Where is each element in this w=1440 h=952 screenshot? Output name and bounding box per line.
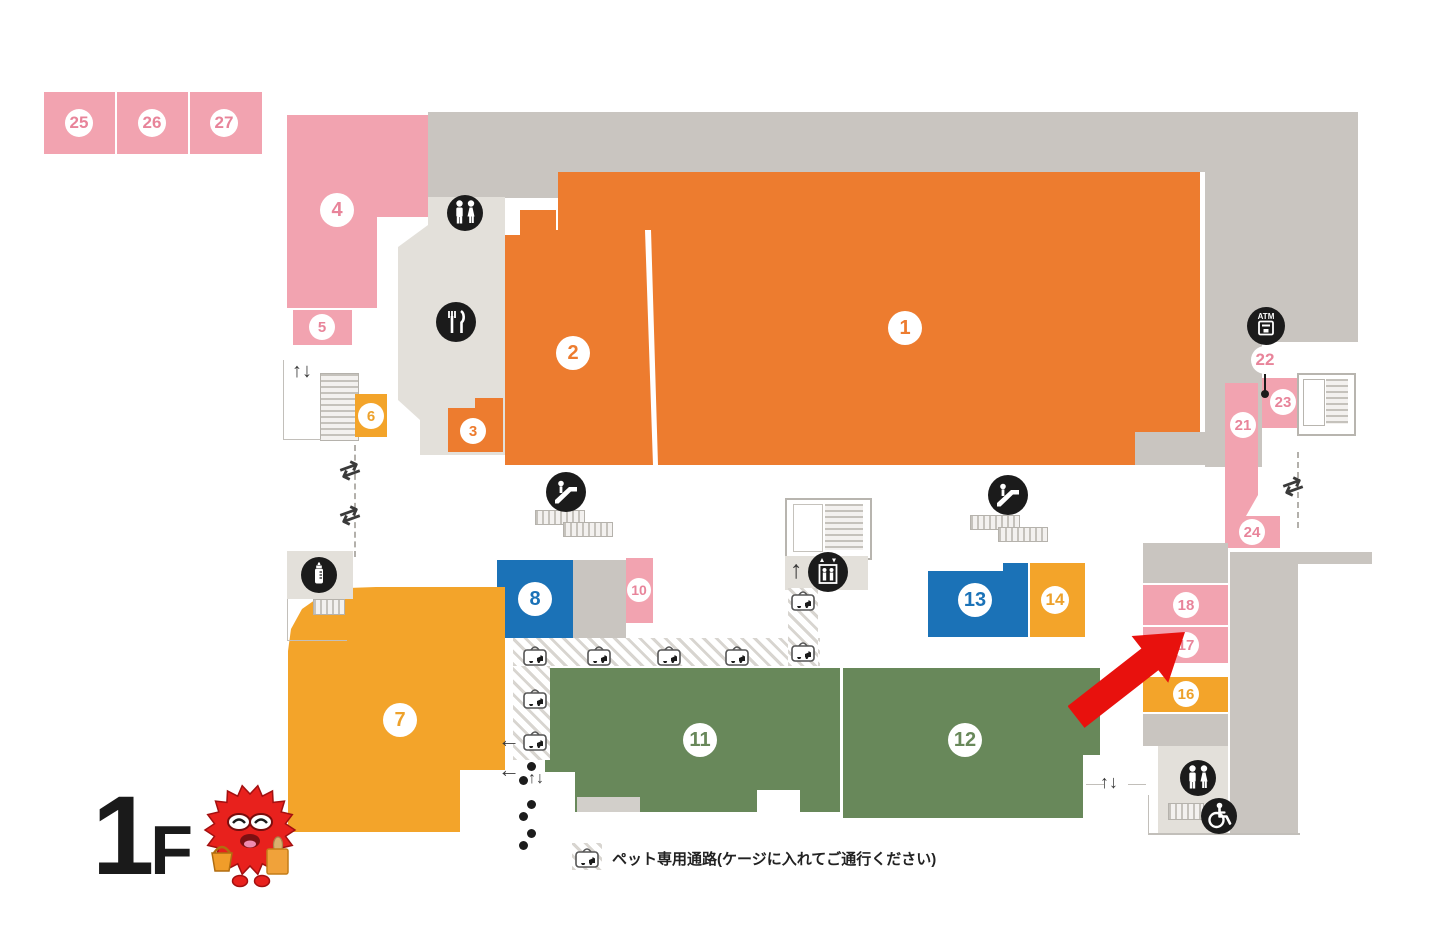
area-21-badge: 21 (1230, 412, 1256, 438)
pet-carrier-icon (724, 643, 750, 667)
stairs-center (785, 498, 872, 560)
area-12-badge: 12 (948, 723, 982, 757)
baby-room-icon (301, 557, 337, 593)
escalator-icon (546, 472, 586, 512)
stairs-direction-arrow: ↑↓ (292, 360, 312, 383)
area-14-badge: 14 (1041, 586, 1069, 614)
floor-label: 1F (92, 780, 193, 892)
area-25-badge: 25 (65, 109, 93, 137)
right-column-block-top (1143, 543, 1228, 583)
entrance-arrow: ⇄ (1279, 469, 1308, 503)
mascot (200, 775, 300, 893)
trail-dot (519, 812, 528, 821)
corridor-direction-arrow: ↑↓ (528, 770, 544, 788)
area-11-badge: 11 (683, 723, 717, 757)
right-corridor-arm (1298, 552, 1372, 564)
toilet-icon (1180, 760, 1216, 796)
pet-carrier-icon (574, 845, 600, 869)
area-18-badge: 18 (1173, 592, 1199, 618)
area-1-badge: 1 (888, 311, 922, 345)
atm-icon: ATM (1247, 307, 1285, 345)
area-1 (558, 172, 1200, 465)
wheelchair-icon (1201, 798, 1237, 834)
area-23-badge: 23 (1270, 389, 1296, 415)
restaurant-icon (436, 302, 476, 342)
wall-line (287, 599, 288, 641)
wall-line (1148, 795, 1149, 835)
building-band-top-left (428, 112, 558, 198)
building-notch (1135, 432, 1205, 465)
pet-carrier-icon (522, 728, 548, 752)
area-22-badge: 22 (1251, 346, 1279, 374)
trail-dot (527, 762, 536, 771)
wall-line (287, 640, 347, 641)
pet-carrier-icon (790, 588, 816, 612)
area-24-badge: 24 (1239, 519, 1265, 545)
escalator-ramp (998, 527, 1048, 542)
pet-carrier-icon (522, 686, 548, 710)
area-3-badge: 3 (460, 418, 486, 444)
pet-carrier-icon (586, 643, 612, 667)
wall-line (1128, 784, 1146, 785)
block-next-to-8 (573, 560, 626, 638)
floor-map-1f: ⇄ ⇄ ⇄ ↑↓ ↑↓ ↑↓ ← ← ↑ (0, 0, 1440, 952)
area-6-badge: 6 (358, 403, 384, 429)
wall-line (283, 360, 284, 440)
ramp-right-bottom (1168, 803, 1204, 820)
floor-letter: F (150, 811, 193, 889)
area-7-badge: 7 (383, 703, 417, 737)
building-band-top (558, 112, 1205, 172)
right-corridor-block (1230, 552, 1298, 835)
area-21 (1225, 383, 1258, 533)
area-2-badge: 2 (556, 336, 590, 370)
area-5-badge: 5 (309, 314, 335, 340)
floor-number: 1 (92, 773, 150, 898)
area-22-pointer-dot (1261, 390, 1269, 398)
pet-carrier-icon (656, 643, 682, 667)
trail-dot (527, 800, 536, 809)
up-arrow: ↑ (790, 556, 803, 585)
wall-line (283, 439, 321, 440)
pet-carrier-icon (522, 643, 548, 667)
trail-dot (519, 776, 528, 785)
area-4-badge: 4 (320, 193, 354, 227)
stairs-right-top (1297, 373, 1356, 436)
trail-dot (519, 841, 528, 850)
entrance-arrow: ⇄ (336, 453, 365, 487)
area-13-badge: 13 (958, 583, 992, 617)
stairs-left (320, 373, 359, 441)
escalator-ramp (563, 522, 613, 537)
left-arrow: ← (498, 757, 520, 783)
entrance-arrow: ⇄ (336, 498, 365, 532)
area-10-badge: 10 (627, 578, 651, 602)
area-11-bottom-tab (577, 797, 640, 812)
atm-label: ATM (1258, 312, 1275, 321)
ramp-baby-room (313, 599, 345, 615)
red-arrow (1068, 620, 1193, 732)
toilet-icon (447, 195, 483, 231)
left-arrow: ← (498, 727, 520, 753)
legend-pet-path-text: ペット専用通路(ケージに入れてご通行ください) (612, 848, 936, 869)
elevator-icon (808, 552, 848, 592)
pet-carrier-icon (790, 639, 816, 663)
corridor-direction-arrow: ↑↓ (1100, 772, 1118, 793)
area-27-badge: 27 (210, 109, 238, 137)
area-26-badge: 26 (138, 109, 166, 137)
escalator-icon (988, 475, 1028, 515)
area-8-badge: 8 (518, 582, 552, 616)
trail-dot (527, 829, 536, 838)
